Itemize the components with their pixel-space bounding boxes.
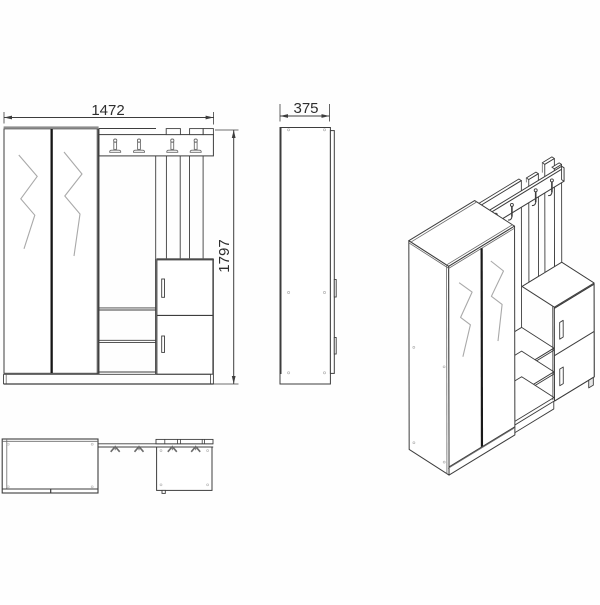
svg-text:1797: 1797	[216, 239, 233, 272]
svg-text:375: 375	[293, 100, 318, 117]
svg-text:1472: 1472	[91, 102, 124, 119]
